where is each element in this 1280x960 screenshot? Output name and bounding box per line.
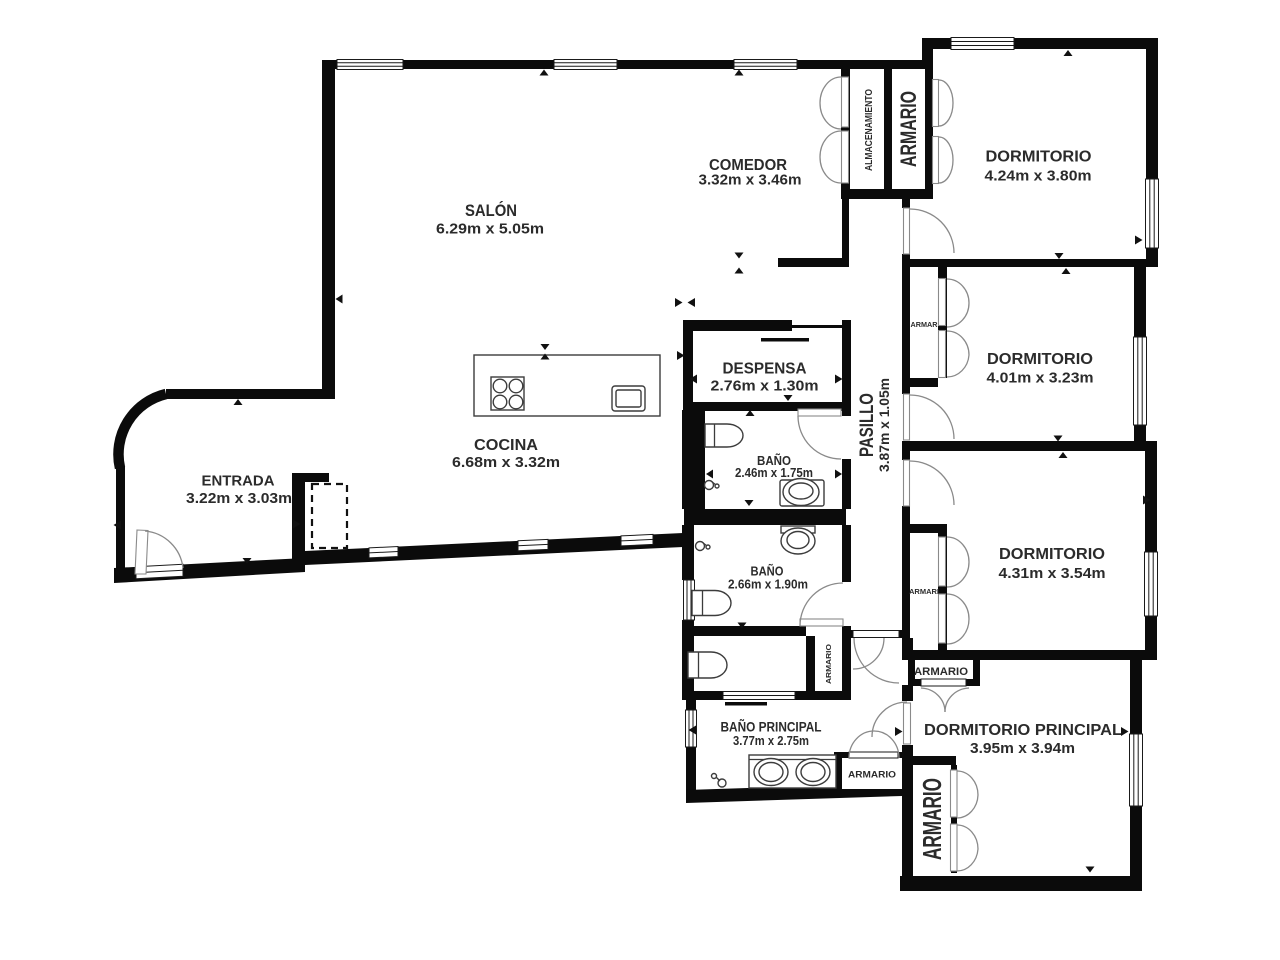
svg-text:DORMITORIO: DORMITORIO bbox=[999, 546, 1105, 563]
svg-text:COMEDOR: COMEDOR bbox=[709, 157, 787, 174]
svg-text:PASILLO: PASILLO bbox=[857, 393, 878, 457]
svg-text:3.32m x 3.46m: 3.32m x 3.46m bbox=[699, 173, 802, 189]
svg-text:BAÑO: BAÑO bbox=[751, 564, 784, 579]
svg-text:ARMARI: ARMARI bbox=[909, 587, 939, 596]
svg-text:COCINA: COCINA bbox=[474, 437, 538, 454]
svg-text:ENTRADA: ENTRADA bbox=[202, 473, 275, 490]
svg-text:ARMAR: ARMAR bbox=[911, 320, 939, 329]
svg-text:DORMITORIO: DORMITORIO bbox=[987, 351, 1093, 368]
svg-text:ARMARIO: ARMARIO bbox=[826, 643, 833, 684]
svg-text:ARMARIO: ARMARIO bbox=[914, 666, 968, 678]
svg-text:SALÓN: SALÓN bbox=[465, 201, 517, 220]
svg-text:2.66m x 1.90m: 2.66m x 1.90m bbox=[728, 578, 808, 592]
svg-text:ARMARIO: ARMARIO bbox=[896, 91, 921, 167]
svg-text:3.87m x 1.05m: 3.87m x 1.05m bbox=[877, 378, 892, 472]
svg-text:2.76m x 1.30m: 2.76m x 1.30m bbox=[711, 379, 819, 395]
svg-text:ALMACENAMIENTO: ALMACENAMIENTO bbox=[864, 89, 875, 171]
svg-text:DORMITORIO PRINCIPAL: DORMITORIO PRINCIPAL bbox=[924, 722, 1122, 739]
svg-text:4.31m x 3.54m: 4.31m x 3.54m bbox=[999, 566, 1106, 582]
svg-text:6.68m x 3.32m: 6.68m x 3.32m bbox=[452, 455, 560, 471]
svg-text:DESPENSA: DESPENSA bbox=[723, 361, 807, 378]
svg-text:DORMITORIO: DORMITORIO bbox=[986, 149, 1092, 166]
svg-text:4.01m x 3.23m: 4.01m x 3.23m bbox=[987, 371, 1094, 387]
svg-text:3.22m x 3.03m: 3.22m x 3.03m bbox=[186, 491, 292, 507]
svg-text:2.46m x 1.75m: 2.46m x 1.75m bbox=[735, 466, 813, 480]
svg-text:3.77m x 2.75m: 3.77m x 2.75m bbox=[733, 733, 809, 748]
svg-text:3.95m x 3.94m: 3.95m x 3.94m bbox=[970, 741, 1075, 757]
svg-text:ARMARIO: ARMARIO bbox=[917, 778, 947, 860]
svg-text:4.24m x 3.80m: 4.24m x 3.80m bbox=[985, 169, 1092, 185]
svg-text:ARMARIO: ARMARIO bbox=[848, 770, 896, 781]
svg-text:6.29m x 5.05m: 6.29m x 5.05m bbox=[436, 222, 544, 238]
